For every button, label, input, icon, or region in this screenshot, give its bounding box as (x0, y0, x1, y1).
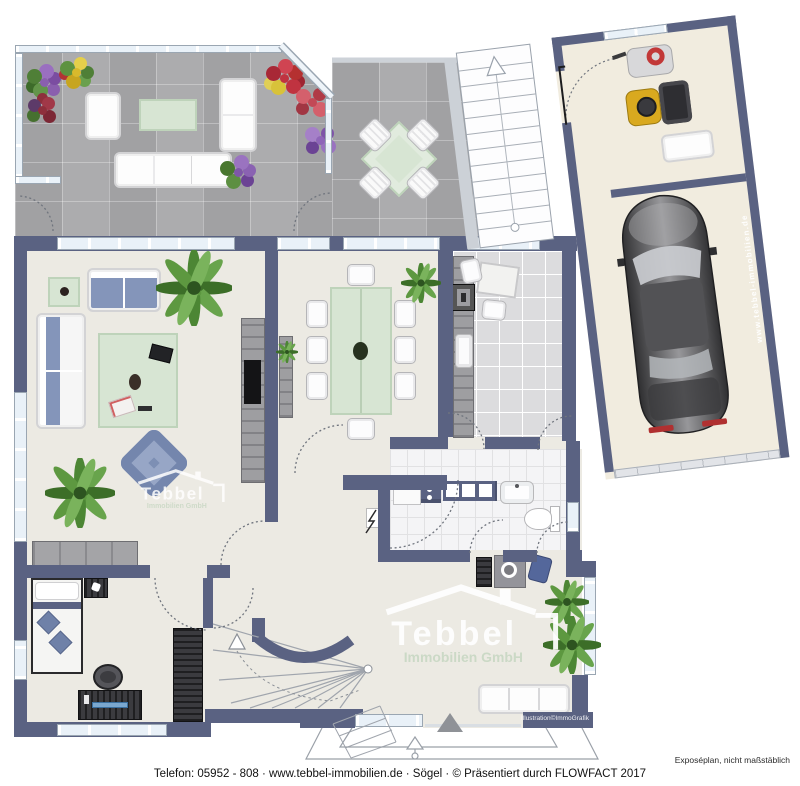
window-bedroom-left (14, 640, 27, 680)
dining-chair (394, 300, 416, 328)
wall-corner-right (566, 561, 596, 577)
car-hood (626, 199, 700, 249)
decor-vase (129, 374, 141, 390)
desk-pc (84, 695, 89, 704)
terrace-glass-table (139, 99, 197, 131)
door-bath-back (567, 502, 579, 532)
wall-bath-bottom-b (503, 550, 537, 562)
table-centerpiece (353, 342, 368, 360)
wall-stairs-stub (252, 618, 265, 642)
flower-pot (280, 74, 289, 83)
floor-plan: Illustration©ImmoGrafik (0, 0, 800, 786)
kitchen-chair (481, 299, 507, 321)
entrance-arrow-icon (437, 713, 463, 732)
plan-disclaimer: Exposéplan, nicht maßstäblich (0, 755, 790, 765)
glazing-terrace-top (15, 45, 282, 53)
window-bedroom-bottom (57, 724, 167, 736)
faucet (515, 484, 519, 488)
garage-wall-right (726, 15, 789, 458)
office-chair (93, 664, 123, 690)
flower-pot (40, 78, 49, 87)
terrace-armchair (85, 92, 121, 140)
dining-chair (347, 418, 375, 440)
dining-chair (394, 372, 416, 400)
flower-pot (38, 106, 47, 115)
washing-machine-door (501, 562, 517, 578)
tv-screen (244, 360, 261, 404)
wall-dining-hall (343, 475, 447, 490)
kitchen-table (476, 261, 520, 298)
remote-control (138, 406, 152, 411)
illustration-credit: Illustration©ImmoGrafik (505, 712, 592, 726)
wall-kitchen-right (562, 251, 576, 441)
car-trunk (647, 377, 722, 422)
dining-chair (306, 372, 328, 400)
wall-bath-bottom-c (570, 550, 582, 562)
wall-entrance-left (300, 712, 355, 728)
hose-cart-handle (612, 52, 627, 60)
wall-living-dining (265, 251, 278, 481)
car-mirror (615, 258, 625, 267)
car-taillight (648, 425, 674, 434)
toilet-bowl (524, 508, 552, 530)
window-hall-right (584, 577, 596, 675)
wall-living-hall (265, 481, 278, 522)
dining-chair (347, 264, 375, 286)
car-taillight (702, 418, 728, 427)
wall-bedroom-top-b (207, 565, 230, 578)
flower-pot (316, 136, 325, 145)
radiator (476, 557, 492, 587)
living-sofa-two-seat (87, 268, 161, 312)
hall-sideboard (478, 684, 570, 714)
terrace-sofa-long (114, 152, 232, 188)
flower-pot (308, 98, 317, 107)
glazing-terrace-sill (15, 176, 61, 184)
stairs-up-arrow-icon (485, 56, 505, 76)
car-body (616, 190, 733, 437)
wall-bedroom-hall (203, 578, 213, 628)
window-dining-top (343, 237, 440, 250)
garage-divider-wall (611, 173, 747, 198)
dining-chair (306, 300, 328, 328)
window-living-terrace (57, 237, 235, 250)
glazing-terrace-right (325, 98, 332, 174)
dining-lowboard (279, 336, 293, 418)
car-roof (639, 278, 710, 353)
window-dining-terrace (277, 237, 330, 250)
window-living-left (14, 392, 27, 542)
lawn-mower-handle (658, 80, 693, 125)
garage-window (603, 24, 668, 41)
desk-monitor (92, 702, 128, 708)
wall-dining-kitchen (438, 251, 453, 437)
flower-pot (234, 168, 243, 177)
window-kitchen-top (468, 237, 540, 250)
wall-kitchen-bottom-b (485, 437, 540, 449)
cabinet-front (446, 484, 459, 497)
steps-arrow-icon (407, 737, 423, 749)
window-entrance-sidelight (355, 714, 423, 727)
dining-chair (306, 336, 328, 364)
terrace-sofa-right (219, 78, 257, 152)
kitchen-sink (455, 334, 473, 368)
wardrobe (173, 628, 203, 722)
garage-door (614, 449, 781, 478)
bed-pillow (35, 582, 79, 600)
flower-pot (72, 68, 81, 77)
glazing-terrace-left (15, 53, 23, 178)
wall-kitchen-bottom-a (390, 437, 448, 449)
car (609, 182, 739, 448)
dining-chair (394, 336, 416, 364)
cabinet-front (462, 484, 475, 497)
living-sofa-long (36, 313, 86, 429)
stove (452, 284, 475, 311)
car-rear-window (647, 348, 713, 382)
garage: www.tebbel-immobilien.de (552, 15, 790, 479)
wall-bedroom-top-a (15, 565, 150, 578)
utility-knob (427, 495, 432, 500)
car-windshield (631, 242, 704, 286)
footer-contact-line: Telefon: 05952 - 808 · www.tebbel-immobi… (0, 768, 800, 780)
decor-bowl (60, 287, 69, 296)
bed-blanket-fold (33, 602, 81, 609)
living-sideboard (32, 541, 138, 566)
wall-bath-bottom-a (378, 550, 470, 562)
garage-shelf (660, 129, 715, 163)
car-mirror (709, 247, 719, 256)
cabinet-front (479, 484, 492, 497)
stairs-start-circle (511, 223, 520, 232)
